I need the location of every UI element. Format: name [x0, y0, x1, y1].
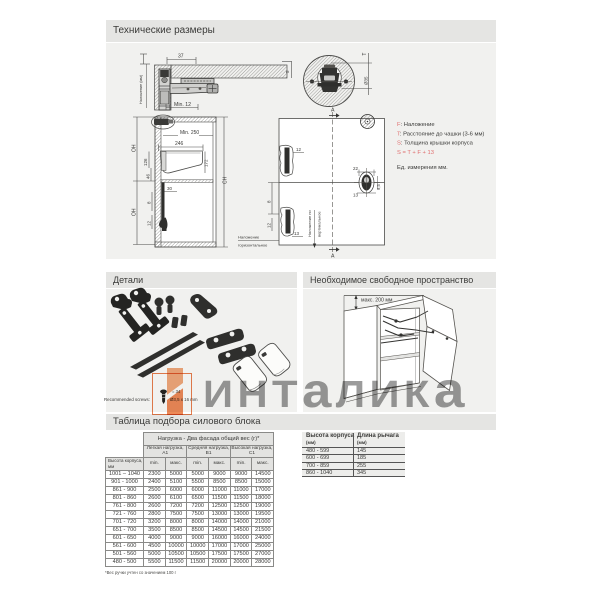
svg-text:Наложение: Наложение [238, 235, 260, 240]
svg-text:F: Наложение: F: Наложение [397, 122, 435, 128]
svg-text:Наложение (мм): Наложение (мм) [139, 74, 143, 104]
svg-text:Ед. измерения мм.: Ед. измерения мм. [397, 165, 448, 171]
svg-text:Min. 250: Min. 250 [180, 130, 199, 136]
svg-text:126: 126 [143, 158, 148, 166]
svg-text:S: Толщина крышки корпуса: S: Толщина крышки корпуса [397, 141, 474, 147]
svg-text:CH: CH [223, 176, 229, 184]
svg-text:172: 172 [204, 159, 209, 167]
svg-text:12: 12 [267, 222, 272, 228]
svg-text:246: 246 [175, 141, 184, 147]
svg-text:S = T + F + 13: S = T + F + 13 [397, 150, 434, 156]
svg-text:30: 30 [167, 186, 173, 191]
svg-text:8: 8 [147, 201, 152, 204]
svg-text:Recommended screws:: Recommended screws: [104, 397, 150, 402]
svg-text:13: 13 [294, 231, 300, 236]
svg-text:46: 46 [146, 173, 151, 179]
svg-text:22: 22 [353, 166, 359, 171]
svg-text:12: 12 [296, 147, 302, 152]
svg-text:8: 8 [267, 200, 272, 203]
svg-text:макс. 200 мм: макс. 200 мм [361, 298, 393, 304]
svg-text:Ø35: Ø35 [364, 76, 369, 85]
svg-text:12: 12 [147, 220, 152, 226]
svg-text:Наложение по: Наложение по [307, 209, 312, 237]
svg-text:OH: OH [132, 144, 138, 152]
svg-text:T: Расстояние до чашки (3-6 мм: T: Расстояние до чашки (3-6 мм) [397, 132, 484, 138]
svg-text:A: A [331, 254, 335, 260]
svg-text:9,5: 9,5 [376, 184, 381, 190]
svg-text:T: T [362, 53, 368, 56]
svg-text:вертикальное: вертикальное [317, 211, 322, 237]
svg-text:OH: OH [132, 208, 138, 216]
svg-text:37: 37 [178, 54, 184, 60]
svg-text:горизонтальное: горизонтальное [238, 243, 268, 248]
svg-text:A: A [331, 108, 335, 114]
svg-text:Min. 12: Min. 12 [174, 102, 191, 108]
